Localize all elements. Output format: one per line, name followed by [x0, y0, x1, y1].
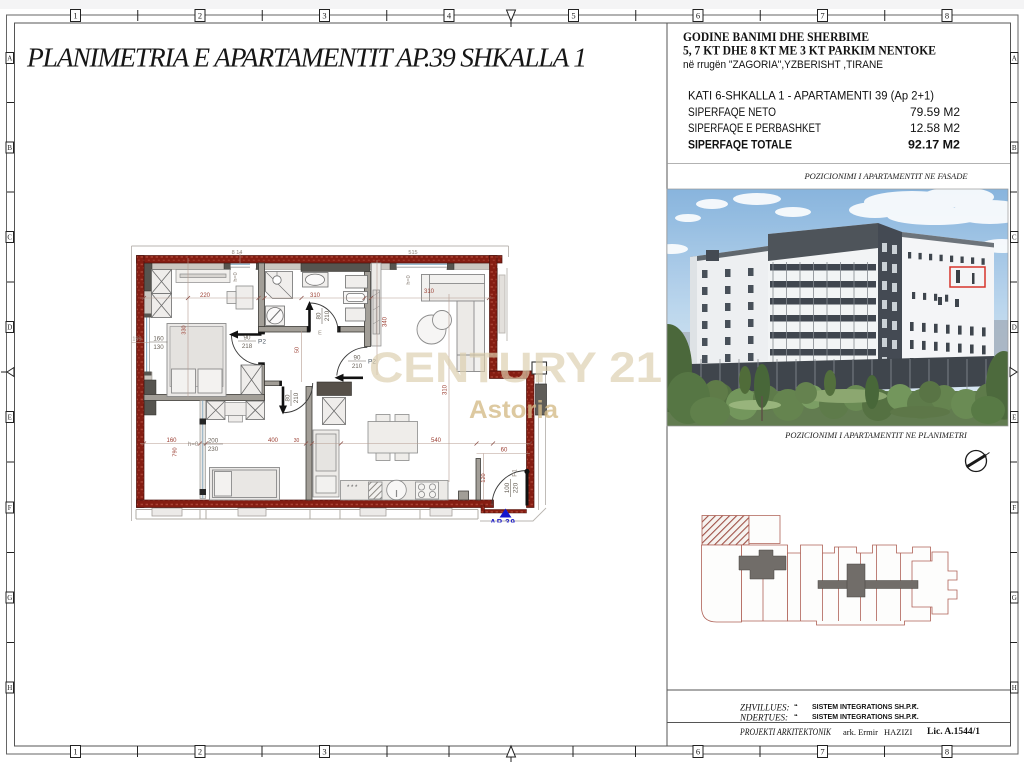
- svg-text:80: 80: [316, 312, 323, 319]
- svg-text:220: 220: [200, 293, 211, 299]
- svg-text:200: 200: [208, 438, 219, 445]
- svg-text:400: 400: [268, 438, 279, 444]
- svg-text:SISTEM INTEGRATIONS SH.P.K.: SISTEM INTEGRATIONS SH.P.K.: [812, 704, 919, 711]
- svg-text:310: 310: [310, 293, 321, 299]
- svg-text:SIPERFAQE E PERBASHKET: SIPERFAQE E PERBASHKET: [688, 123, 821, 135]
- svg-text:D: D: [1012, 324, 1017, 332]
- svg-text:218: 218: [242, 343, 253, 350]
- svg-text:P2: P2: [258, 339, 266, 346]
- svg-text:1: 1: [73, 11, 77, 21]
- svg-text:540: 540: [431, 438, 442, 444]
- svg-text:210: 210: [324, 310, 331, 321]
- svg-text:E: E: [318, 331, 322, 337]
- svg-text:E: E: [1012, 414, 1016, 422]
- svg-text:C: C: [7, 234, 12, 242]
- svg-text:1: 1: [73, 747, 77, 757]
- svg-text:ark. Ermir: ark. Ermir: [843, 727, 878, 737]
- svg-text:PROJEKTI ARKITEKTONIK: PROJEKTI ARKITEKTONIK: [739, 728, 831, 738]
- svg-text:6: 6: [696, 747, 700, 757]
- svg-text:8: 8: [945, 11, 949, 21]
- svg-text:H: H: [1012, 684, 1017, 692]
- svg-text:230: 230: [208, 446, 219, 453]
- svg-text:A: A: [1012, 55, 1017, 63]
- svg-text:h=0: h=0: [406, 275, 412, 284]
- svg-text:790: 790: [173, 447, 179, 456]
- svg-text:h=0: h=0: [188, 442, 199, 448]
- svg-text:PLANIMETRIA E APARTAMENTIT AP.: PLANIMETRIA E APARTAMENTIT AP.39 SHKALLA…: [26, 42, 587, 73]
- svg-text:199: 199: [132, 337, 141, 343]
- svg-text:F: F: [8, 504, 12, 512]
- svg-text:5: 5: [571, 11, 575, 21]
- svg-text:60: 60: [501, 448, 508, 454]
- svg-text:P1: P1: [512, 469, 519, 477]
- svg-text:G: G: [7, 594, 12, 602]
- svg-text:3: 3: [322, 747, 326, 757]
- svg-text:6: 6: [696, 11, 700, 21]
- svg-text:90: 90: [354, 355, 361, 362]
- svg-text:ZHVILLUES:: ZHVILLUES:: [740, 703, 790, 713]
- svg-text:8 14: 8 14: [232, 250, 243, 256]
- svg-text:3: 3: [322, 11, 326, 21]
- svg-text:”: ”: [913, 702, 917, 711]
- svg-text:* * *: * * *: [347, 485, 358, 491]
- svg-text:92.17 M2: 92.17 M2: [908, 140, 960, 152]
- svg-text:D: D: [7, 324, 12, 332]
- svg-text:Lic. A.1544/1: Lic. A.1544/1: [927, 727, 980, 737]
- svg-text:130: 130: [153, 344, 164, 351]
- svg-text:A: A: [7, 55, 12, 63]
- svg-text:100: 100: [504, 482, 511, 493]
- svg-text:515: 515: [408, 250, 417, 256]
- svg-text:8: 8: [945, 747, 949, 757]
- svg-text:79.59 M2: 79.59 M2: [910, 107, 960, 119]
- svg-text:220: 220: [512, 482, 519, 493]
- svg-text:E: E: [8, 414, 12, 422]
- svg-text:F: F: [1012, 504, 1016, 512]
- svg-text:2: 2: [198, 11, 202, 21]
- svg-text:50: 50: [295, 347, 301, 353]
- svg-text:B: B: [7, 144, 12, 152]
- svg-text:”: ”: [913, 712, 917, 721]
- svg-text:KATI 6-SHKALLA 1 - APARTAMENTI: KATI 6-SHKALLA 1 - APARTAMENTI 39 (Ap 2+…: [688, 91, 934, 103]
- svg-text:SISTEM INTEGRATIONS SH.P.K.: SISTEM INTEGRATIONS SH.P.K.: [812, 714, 919, 721]
- svg-text:7: 7: [820, 747, 824, 757]
- svg-text:340: 340: [383, 316, 389, 327]
- svg-text:90: 90: [244, 335, 251, 342]
- svg-text:B: B: [1012, 144, 1017, 152]
- svg-text:160: 160: [166, 438, 177, 444]
- svg-text:POZICIONIMI I APARTAMENTIT NE: POZICIONIMI I APARTAMENTIT NE PLANIMETRI: [784, 430, 968, 440]
- svg-text:7: 7: [820, 11, 824, 21]
- svg-text:“: “: [794, 712, 798, 721]
- svg-text:310: 310: [424, 289, 435, 295]
- svg-text:Astoria: Astoria: [469, 396, 559, 424]
- svg-text:210: 210: [293, 392, 300, 403]
- svg-text:“: “: [794, 702, 798, 711]
- svg-text:160: 160: [153, 336, 164, 343]
- svg-text:POZICIONIMI I APARTAMENTIT NE: POZICIONIMI I APARTAMENTIT NE FASADE: [803, 171, 968, 181]
- svg-text:210: 210: [352, 363, 363, 370]
- svg-text:330: 330: [182, 325, 188, 334]
- svg-text:120: 120: [481, 473, 487, 482]
- svg-text:H: H: [7, 684, 12, 692]
- svg-text:NDERTUES:: NDERTUES:: [739, 713, 788, 723]
- svg-text:HAZIZI: HAZIZI: [884, 727, 912, 737]
- svg-text:SIPERFAQE NETO: SIPERFAQE NETO: [688, 107, 776, 119]
- svg-text:SIPERFAQE TOTALE: SIPERFAQE TOTALE: [688, 140, 792, 152]
- svg-text:në rrugën "ZAGORIA",YZBERISHT: në rrugën "ZAGORIA",YZBERISHT ,TIRANE: [683, 59, 883, 71]
- svg-text:h=0: h=0: [233, 272, 239, 281]
- svg-text:CENTURY 21: CENTURY 21: [369, 344, 662, 392]
- svg-text:30: 30: [294, 438, 300, 444]
- svg-text:80: 80: [285, 394, 292, 401]
- svg-text:2: 2: [198, 747, 202, 757]
- svg-text:5, 7 KT DHE 8 KT ME 3 KT PARKI: 5, 7 KT DHE 8 KT ME 3 KT PARKIM NENTOKE: [683, 43, 936, 58]
- svg-text:C: C: [1012, 234, 1017, 242]
- svg-text:G: G: [1012, 594, 1017, 602]
- svg-text:12.58 M2: 12.58 M2: [910, 123, 960, 135]
